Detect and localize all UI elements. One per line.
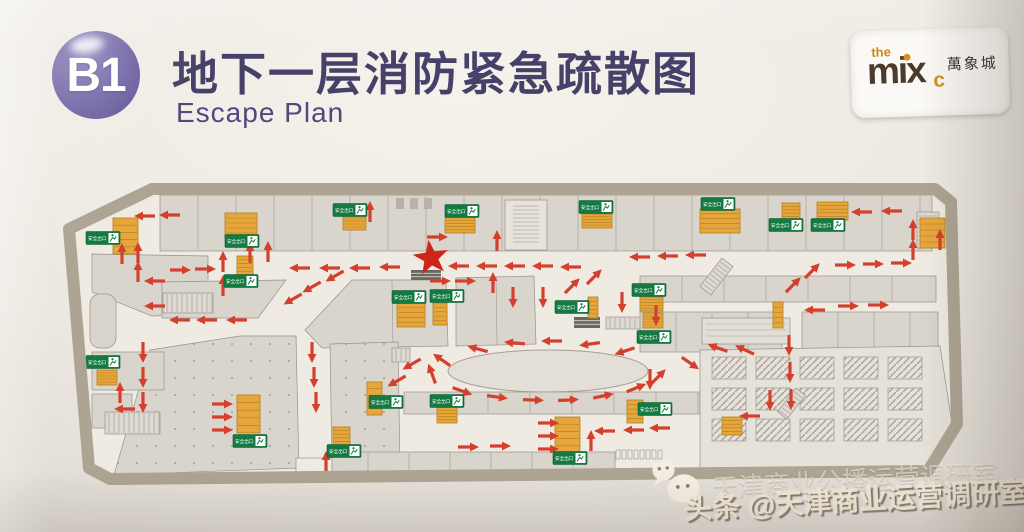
stair-block (397, 303, 425, 327)
exit-sign-label: 安全出口 (88, 359, 107, 366)
exit-sign-label: 安全出口 (335, 207, 354, 214)
exit-sign: 安全出口 (553, 452, 587, 465)
stair-block (643, 313, 663, 328)
stair-block (555, 417, 580, 453)
exit-sign-label: 安全出口 (581, 204, 600, 211)
exit-sign-label: 安全出口 (394, 294, 413, 301)
exit-sign-label: 安全出口 (88, 235, 107, 242)
stair-block (445, 217, 475, 233)
exit-sign: 安全出口 (392, 291, 426, 304)
stair-block (333, 427, 350, 445)
exit-sign-label: 安全出口 (432, 293, 451, 300)
exit-sign: 安全出口 (769, 219, 803, 232)
exit-sign-label: 安全出口 (771, 222, 790, 229)
exit-sign-label: 安全出口 (813, 222, 832, 229)
stair-block (582, 214, 612, 228)
exit-sign: 安全出口 (555, 301, 589, 314)
exit-sign: 安全出口 (369, 396, 403, 409)
stair-block (640, 297, 663, 311)
stair-block (817, 202, 848, 220)
stair-block (343, 215, 366, 230)
exit-sign: 安全出口 (333, 204, 367, 217)
exit-sign: 安全出口 (233, 435, 267, 448)
exit-sign-label: 安全出口 (703, 201, 722, 208)
parking-area (700, 346, 952, 470)
exit-sign-label: 安全出口 (227, 238, 246, 245)
exit-sign: 安全出口 (811, 219, 845, 232)
exit-sign-label: 安全出口 (557, 304, 576, 311)
exit-sign: 安全出口 (579, 201, 613, 214)
exit-sign: 安全出口 (430, 395, 464, 408)
exit-sign: 安全出口 (327, 445, 361, 458)
stair-block (433, 303, 447, 325)
exit-sign: 安全出口 (701, 198, 735, 211)
stair-block (722, 417, 742, 435)
exit-sign-label: 安全出口 (447, 208, 466, 215)
stair-block (97, 370, 117, 385)
stair-block (437, 407, 457, 423)
stair-block (588, 297, 598, 318)
map-interior: 安全出口安全出口安全出口安全出口安全出口安全出口安全出口安全出口安全出口安全出口… (69, 189, 957, 479)
exit-sign-label: 安全出口 (639, 334, 658, 341)
escape-plan-sign-photo: B1 地下一层消防紧急疏散图 Escape Plan the mix c 萬象城… (0, 0, 1024, 532)
exit-sign: 安全出口 (430, 290, 464, 303)
stair-block (773, 302, 783, 328)
exit-sign: 安全出口 (638, 403, 672, 416)
exit-sign-label: 安全出口 (329, 448, 348, 455)
exit-sign: 安全出口 (225, 235, 259, 248)
exit-sign: 安全出口 (637, 331, 671, 344)
exit-sign: 安全出口 (224, 275, 258, 288)
stair-block (237, 395, 260, 433)
floor-plan-map: 安全出口安全出口安全出口安全出口安全出口安全出口安全出口安全出口安全出口安全出口… (0, 0, 1024, 532)
exit-sign-label: 安全出口 (235, 438, 254, 445)
exit-sign-label: 安全出口 (640, 406, 659, 413)
stair-block (782, 203, 800, 220)
exit-sign-label: 安全出口 (371, 399, 390, 406)
exit-sign: 安全出口 (86, 356, 120, 369)
exit-sign: 安全出口 (632, 284, 666, 297)
exit-sign-label: 安全出口 (634, 287, 653, 294)
stair-block (700, 209, 740, 233)
exit-sign: 安全出口 (86, 232, 120, 245)
exit-sign: 安全出口 (445, 205, 479, 218)
exit-sign-label: 安全出口 (432, 398, 451, 405)
exit-sign-label: 安全出口 (555, 455, 574, 462)
exit-sign-label: 安全出口 (226, 278, 245, 285)
